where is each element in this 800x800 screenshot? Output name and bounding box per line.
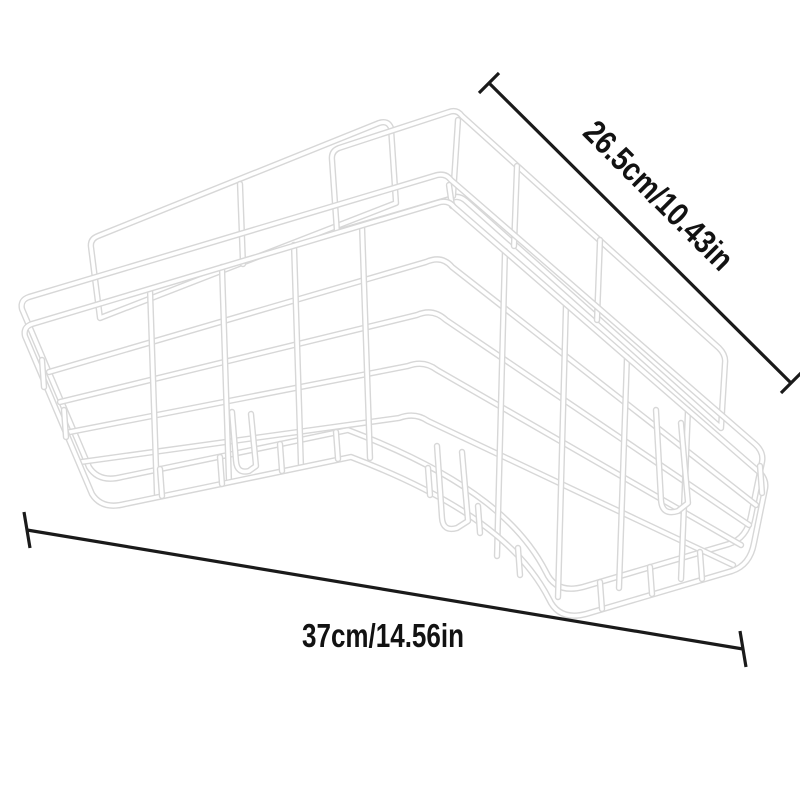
rack-wire bbox=[280, 444, 282, 471]
rack-wire bbox=[64, 410, 66, 437]
rack-wire bbox=[478, 506, 480, 533]
corner-shelf-figure: 26.5cm/10.43in 37cm/14.56in bbox=[0, 0, 800, 800]
rack-wire bbox=[437, 446, 468, 529]
rack-wire bbox=[220, 457, 222, 484]
width-dimension-label: 37cm/14.56in bbox=[302, 617, 464, 654]
rack-wire bbox=[760, 466, 762, 493]
rack-wire bbox=[160, 469, 162, 496]
rack-wire bbox=[700, 552, 702, 579]
depth-dimension-line bbox=[489, 83, 791, 383]
rack-wire bbox=[336, 432, 338, 459]
rack-wire bbox=[428, 468, 430, 495]
rack-wire bbox=[600, 582, 602, 609]
rack-wire bbox=[650, 567, 652, 594]
rack-wire bbox=[518, 548, 520, 575]
rack-wire bbox=[42, 360, 44, 387]
width-dimension: 37cm/14.56in bbox=[24, 512, 746, 667]
product-image: 26.5cm/10.43in 37cm/14.56in bbox=[0, 0, 800, 800]
